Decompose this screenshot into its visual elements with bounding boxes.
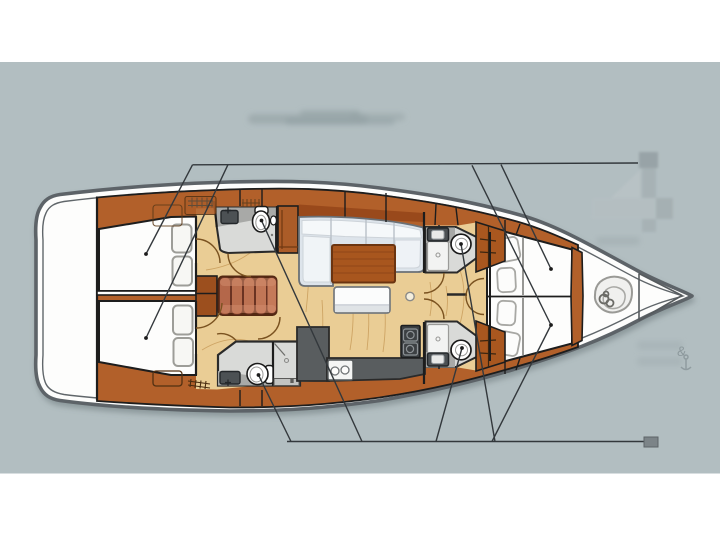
svg-text:&: & bbox=[677, 343, 687, 359]
